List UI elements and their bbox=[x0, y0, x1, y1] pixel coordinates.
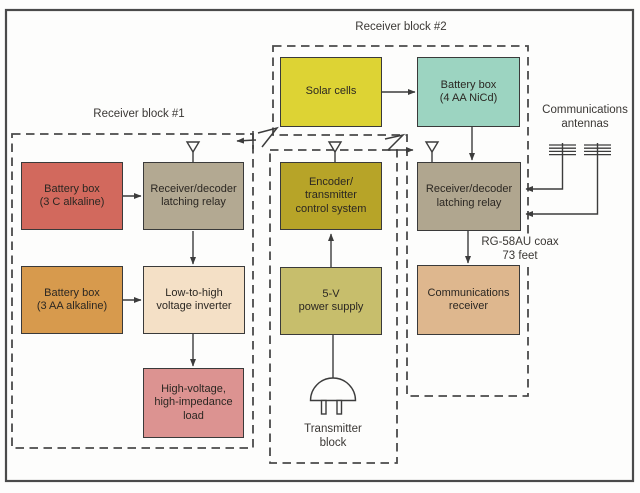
high-voltage-high-impedance-load: High-voltage, high-impedance load bbox=[143, 368, 244, 438]
coax-cable-label: RG-58AU coax 73 feet bbox=[472, 235, 568, 263]
rf-link-left-icon bbox=[237, 128, 277, 149]
encoder-antenna-icon bbox=[329, 142, 341, 162]
communications-receiver: Communications receiver bbox=[417, 265, 520, 335]
encoder-transmitter-control-system: Encoder/ transmitter control system bbox=[280, 162, 382, 230]
solar-cells: Solar cells bbox=[280, 57, 382, 127]
receiver1-antenna-icon bbox=[187, 142, 199, 162]
receiver-decoder-latching-relay-2: Receiver/decoder latching relay bbox=[417, 162, 521, 231]
transmitter-block-title: Transmitter block bbox=[283, 422, 383, 450]
low-to-high-voltage-inverter: Low-to-high voltage inverter bbox=[143, 266, 245, 334]
receiver-block-2-title: Receiver block #2 bbox=[321, 20, 481, 34]
receiver2-antenna-icon bbox=[426, 142, 438, 162]
battery-box-3c-alkaline: Battery box (3 C alkaline) bbox=[21, 162, 123, 230]
battery-box-4aa-nicd: Battery box (4 AA NiCd) bbox=[417, 57, 520, 127]
five-volt-power-supply: 5-V power supply bbox=[280, 267, 382, 335]
lead-commantenna-right-to-rxdecoder2 bbox=[526, 143, 598, 214]
receiver-decoder-latching-relay-1: Receiver/decoder latching relay bbox=[143, 162, 244, 230]
lead-commantenna-left-to-rxdecoder2 bbox=[526, 143, 563, 189]
receiver-block-1-title: Receiver block #1 bbox=[59, 107, 219, 121]
rf-link-right-icon bbox=[385, 135, 413, 150]
power-plug-icon bbox=[311, 378, 356, 414]
block-diagram: Receiver block #1 Receiver block #2 Tran… bbox=[0, 0, 640, 493]
battery-box-3aa-alkaline: Battery box (3 AA alkaline) bbox=[21, 266, 123, 334]
communications-antennas-label: Communications antennas bbox=[523, 103, 640, 131]
